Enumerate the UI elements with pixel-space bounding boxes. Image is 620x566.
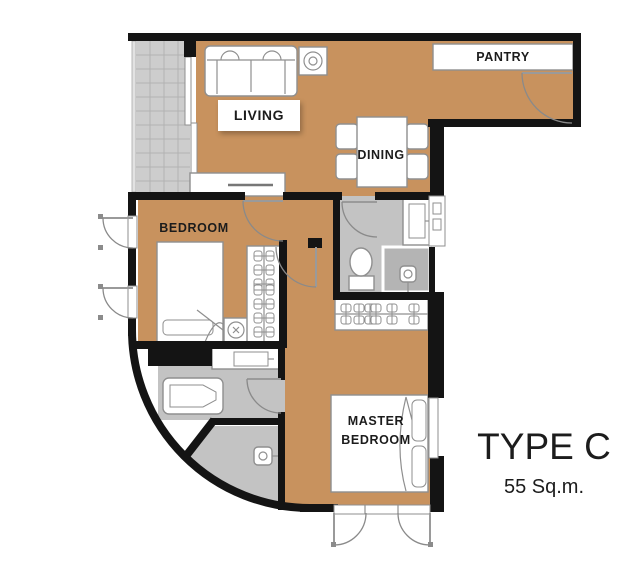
wall-bath1-bottom <box>333 292 432 300</box>
window <box>429 398 438 458</box>
wall-corridor-bottom <box>428 119 581 127</box>
window-mark <box>98 214 103 219</box>
shower-head-icon <box>400 266 416 282</box>
wall-bath2-bottom <box>211 418 285 425</box>
wall-right-lower <box>430 456 444 512</box>
dining-chair <box>406 124 428 149</box>
balcony-door-frame <box>334 505 430 514</box>
dining-chair <box>336 124 358 149</box>
floor-plan-canvas: PANTRY LIVING DINING BEDROOM MASTER BEDR… <box>0 0 620 566</box>
toilet-tank <box>349 276 374 290</box>
label-master-bedroom: MASTER BEDROOM <box>324 412 428 450</box>
wall-master-west-b <box>278 412 285 510</box>
wall-balcony-stub <box>184 41 196 57</box>
door-foot-mark <box>428 542 433 547</box>
wall-chunk <box>148 348 212 366</box>
wall-closet-right <box>279 240 287 348</box>
wall-hall-stub <box>308 238 322 248</box>
wall-top <box>128 33 581 41</box>
label-living: LIVING <box>218 100 300 131</box>
door-swing-balcony <box>334 513 430 545</box>
wall-master-west-a <box>278 345 285 380</box>
plan-area-text: 55 Sq.m. <box>468 474 620 500</box>
window <box>128 216 137 248</box>
bedroom-closet <box>247 246 280 346</box>
wall-bedroom-bottom <box>134 341 285 349</box>
sliding-door-panel <box>185 57 191 125</box>
balcony-tiles <box>136 41 190 192</box>
wall-left-a <box>128 192 136 218</box>
window-mark <box>98 315 103 320</box>
wall-right-mid <box>428 292 444 398</box>
bathroom-2 <box>158 348 285 503</box>
label-bedroom: BEDROOM <box>150 220 238 236</box>
shaft-louver <box>433 219 441 230</box>
toilet-bowl <box>350 248 372 276</box>
fan-coil-unit-icon <box>299 47 327 75</box>
door-leaf <box>334 513 430 545</box>
wall-right-upper <box>430 119 444 196</box>
shower-head-icon <box>254 447 272 465</box>
basin-sink <box>409 204 425 238</box>
wall-bath1-left <box>333 192 340 299</box>
basin-sink-2 <box>234 352 268 366</box>
balcony-balustrade <box>132 41 136 192</box>
wall-living-bedroom <box>134 192 245 200</box>
wall-bath1-top <box>375 192 432 200</box>
pillow <box>163 320 213 335</box>
door-foot-mark <box>331 542 336 547</box>
label-pantry: PANTRY <box>433 45 573 70</box>
window-mark <box>98 245 103 250</box>
master-wardrobe <box>335 299 428 330</box>
plan-type-title: TYPE C <box>468 426 620 468</box>
label-dining: DINING <box>336 148 426 163</box>
wall-right-thin <box>429 247 435 292</box>
label-master-line2: BEDROOM <box>324 431 428 450</box>
wall-left-b <box>128 246 136 288</box>
window-mark <box>98 284 103 289</box>
label-master-line1: MASTER <box>324 412 428 431</box>
balcony <box>132 41 197 192</box>
pillow <box>412 446 426 487</box>
bathtub-basin <box>170 385 216 407</box>
shaft-louver <box>433 203 441 214</box>
window <box>128 286 137 318</box>
wall-right-entry <box>573 33 581 127</box>
bathroom-1 <box>338 196 432 296</box>
